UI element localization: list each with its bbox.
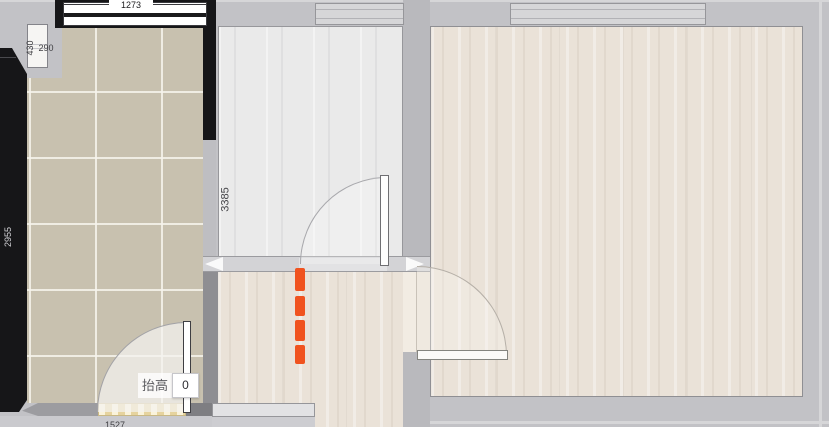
window-line bbox=[316, 18, 403, 19]
door-entry-panel[interactable] bbox=[183, 321, 191, 413]
wall-bottom-left-segment[interactable] bbox=[22, 403, 98, 416]
canvas-right-edge bbox=[819, 0, 822, 427]
split-dash bbox=[295, 268, 305, 291]
floor-plan-canvas: 1273 430 290 2955 3385 1527 抬高 0 bbox=[0, 0, 829, 427]
split-dash bbox=[295, 320, 305, 341]
wall-between-middle-right-upper[interactable] bbox=[403, 0, 430, 266]
window-right-room[interactable] bbox=[510, 3, 706, 25]
door-right-panel[interactable] bbox=[417, 350, 508, 360]
split-dash bbox=[295, 345, 305, 364]
dimension-line bbox=[64, 4, 109, 5]
hallway-floor[interactable] bbox=[218, 259, 403, 427]
window-middle-room[interactable] bbox=[315, 3, 404, 25]
window-line bbox=[511, 9, 705, 10]
dimension-line bbox=[0, 57, 16, 58]
dimension-top-window[interactable]: 1273 bbox=[109, 0, 153, 10]
dimension-middle-room: 3385 bbox=[220, 172, 233, 228]
wall-hallway-left[interactable] bbox=[203, 258, 218, 417]
dimension-line bbox=[153, 4, 206, 5]
left-arrow-icon bbox=[205, 257, 223, 271]
window-mullion bbox=[64, 13, 206, 17]
elevation-value-input[interactable]: 0 bbox=[172, 373, 199, 398]
doorway-threshold-strip bbox=[403, 266, 417, 352]
split-dash bbox=[295, 296, 305, 316]
window-line bbox=[316, 9, 403, 10]
wall-divider-middle[interactable] bbox=[203, 140, 216, 258]
split-line-marker[interactable] bbox=[295, 268, 306, 365]
dimension-left-wall: 2955 bbox=[3, 214, 15, 260]
wall-between-hall-right-lower[interactable] bbox=[403, 352, 430, 427]
door-middle-panel[interactable] bbox=[380, 175, 389, 266]
elevation-label: 抬高 bbox=[138, 373, 172, 398]
exterior-strip-below-sill bbox=[212, 417, 315, 427]
elevation-control[interactable]: 抬高 0 bbox=[138, 373, 200, 398]
dimension-bottom-wall: 1527 bbox=[95, 420, 135, 427]
dimension-left-horizontal: 290 bbox=[33, 43, 59, 54]
window-line bbox=[511, 18, 705, 19]
window-bottom-sill[interactable] bbox=[212, 403, 315, 417]
